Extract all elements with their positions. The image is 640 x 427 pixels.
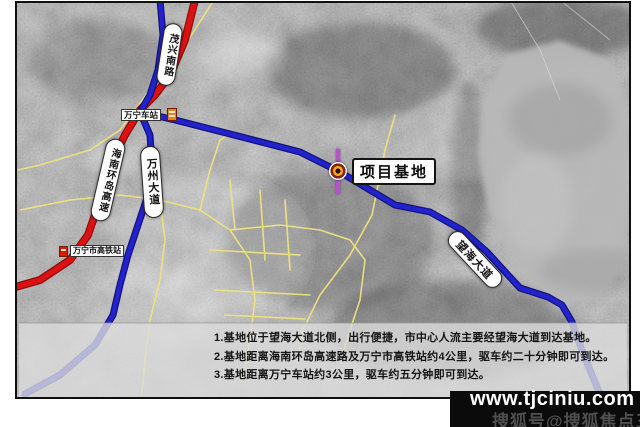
project-location-marker-icon	[329, 162, 347, 180]
wanning-hsr-station-label: 万宁市高铁站	[70, 245, 124, 257]
train-station-icon	[167, 108, 177, 121]
project-base-label: 项目基地	[352, 158, 436, 185]
screenshot-stage: 茂兴南路 海南环岛高速 万州大道 望海大道 万宁车站 万宁市高铁站 项目基地 1…	[0, 0, 640, 427]
road-label-wanzhou-text: 万州大道	[145, 158, 159, 207]
info-line-3: 3.基地距离万宁车站约3公里，驱车约五分钟即可到达。	[214, 366, 490, 382]
info-line-2: 2.基地距离海南环岛高速路及万宁市高铁站约4公里，驱车约二十分钟即可到达。	[214, 348, 614, 364]
hsr-station-icon	[59, 246, 68, 257]
watermark-credit: 搜狐号@搜狐焦点三亚站	[492, 407, 640, 427]
info-line-1: 1.基地位于望海大道北侧，出行便捷，市中心人流主要经望海大道到达基地。	[214, 329, 597, 345]
road-label-maoxing-text: 茂兴南路	[161, 32, 178, 77]
wanning-station-label: 万宁车站	[121, 109, 161, 121]
